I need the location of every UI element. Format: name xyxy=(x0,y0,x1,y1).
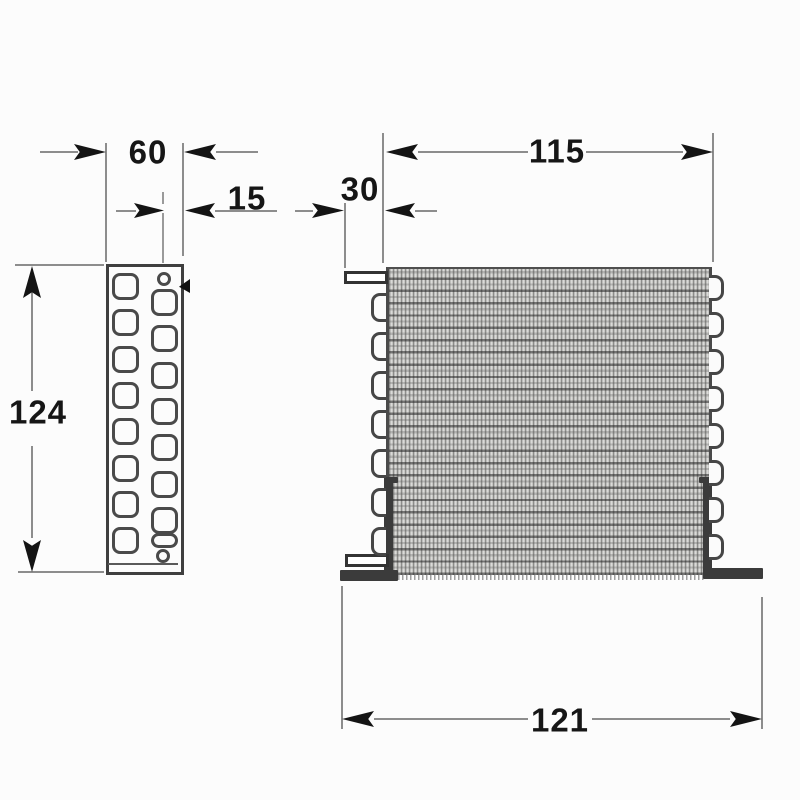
dim-line-121-left xyxy=(374,718,528,720)
dim-line-60-right-tail xyxy=(216,151,258,153)
fin-coil-block xyxy=(386,267,712,575)
dim-line-121-right xyxy=(592,718,730,720)
pilot-hole xyxy=(156,549,170,563)
ext-line-124-bottom xyxy=(18,571,104,573)
plate-hole-right xyxy=(151,434,178,461)
tube-return-bend-right xyxy=(709,460,724,486)
arrow-right-icon xyxy=(730,711,762,727)
dim-line-115-right xyxy=(586,151,683,153)
plate-hole-left xyxy=(112,491,139,518)
dim-line-124-upper xyxy=(31,283,33,391)
arrow-down-icon xyxy=(23,540,41,572)
plate-bottom-inner-line xyxy=(108,563,178,565)
bracket-right xyxy=(703,477,712,578)
tube-return-bend-left xyxy=(371,488,386,517)
ext-line-115-left xyxy=(382,133,384,263)
ext-line-124-top xyxy=(15,264,104,266)
ext-line-60-left xyxy=(105,143,107,262)
arrow-left-icon xyxy=(342,711,374,727)
tube-return-bend-left xyxy=(371,449,386,478)
tube-return-bend-right xyxy=(709,423,724,449)
plate-hole-right xyxy=(151,471,178,498)
pilot-hole xyxy=(157,272,171,286)
dim-label-60: 60 xyxy=(129,136,168,169)
plate-hole-left xyxy=(112,455,139,482)
dim-line-15-left-tail xyxy=(116,210,136,212)
tube-return-bend-right xyxy=(709,497,724,523)
bracket-left-cap xyxy=(384,477,398,483)
ext-line-121-right xyxy=(761,597,763,729)
arrow-left-icon xyxy=(185,203,215,218)
plate-hole-left xyxy=(112,527,139,554)
foot-right xyxy=(703,568,763,579)
ext-line-30-left xyxy=(344,203,346,268)
technical-drawing: 124 60 15 115 30 121 xyxy=(0,0,800,800)
dim-label-115: 115 xyxy=(529,135,585,168)
tube-return-bend-right xyxy=(709,349,724,375)
arrow-left-icon xyxy=(184,144,216,160)
plate-hole-left xyxy=(112,382,139,409)
arrow-right-icon xyxy=(312,203,344,218)
dim-label-124: 124 xyxy=(9,396,67,429)
dim-line-115-left xyxy=(418,151,528,153)
ext-line-115-right xyxy=(712,133,714,262)
tube-return-bend-left xyxy=(371,332,386,361)
plate-hole-right xyxy=(151,362,178,389)
center-line-dash xyxy=(162,192,164,204)
foot-left xyxy=(340,570,398,581)
arrow-right-icon xyxy=(134,203,164,218)
plate-hole-right xyxy=(151,507,178,534)
plate-hole-left xyxy=(112,273,139,300)
tube-return-bend-right xyxy=(709,275,724,301)
plate-hole-left xyxy=(112,309,139,336)
center-line xyxy=(162,213,164,263)
tube-return-bend-left xyxy=(371,371,386,400)
arrow-left-icon xyxy=(386,144,418,160)
dim-label-30: 30 xyxy=(341,173,380,206)
tube-return-bend-right xyxy=(709,386,724,412)
tube-return-bend-left xyxy=(371,410,386,439)
plate-hole-left xyxy=(112,346,139,373)
dim-line-60-left-tail xyxy=(40,151,78,153)
dim-label-121: 121 xyxy=(531,704,589,737)
arrow-right-icon xyxy=(681,144,713,160)
tube-return-bend-right xyxy=(709,312,724,338)
arrow-right-icon xyxy=(74,144,106,160)
plate-hole-left xyxy=(112,418,139,445)
fin-bottom-fringe xyxy=(398,575,704,580)
dim-line-30-left-tail xyxy=(295,210,313,212)
plate-hole-right xyxy=(151,398,178,425)
plate-hole-right xyxy=(151,325,178,352)
plate-hole-right xyxy=(151,533,178,548)
tube-return-bend-right xyxy=(709,534,724,560)
tube-return-bend-left xyxy=(371,527,386,556)
arrow-left-icon xyxy=(385,203,415,218)
plate-hole-right xyxy=(151,289,178,316)
dim-line-124-lower xyxy=(31,446,33,538)
dim-line-30-right-tail xyxy=(415,210,437,212)
dim-label-15: 15 xyxy=(228,182,267,215)
inlet-pipe-stub xyxy=(344,271,388,284)
ext-line-60-right xyxy=(182,143,184,256)
tube-return-bend-left xyxy=(371,293,386,322)
ext-line-121-left xyxy=(341,586,343,729)
